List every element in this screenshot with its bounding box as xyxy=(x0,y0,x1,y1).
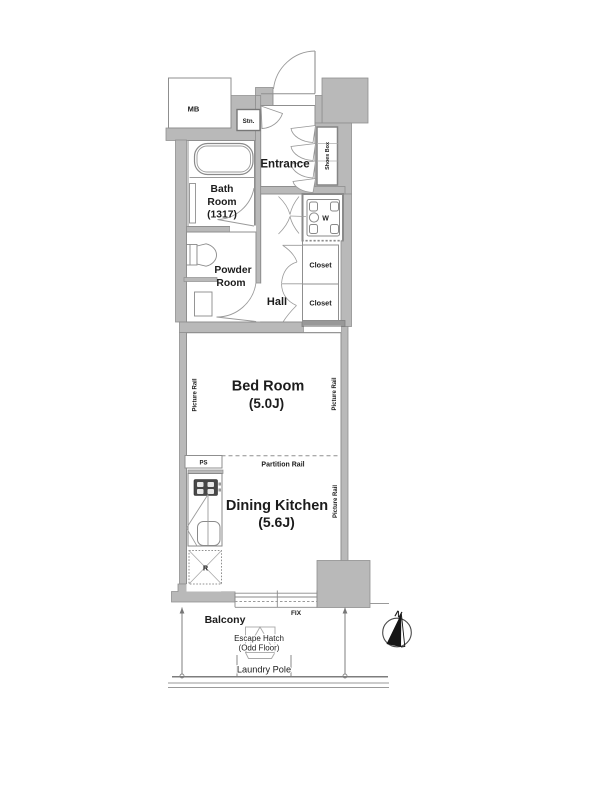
svg-text:Bath: Bath xyxy=(211,184,234,195)
svg-text:Powder: Powder xyxy=(214,265,251,276)
svg-text:Closet: Closet xyxy=(309,299,332,308)
svg-text:Entrance: Entrance xyxy=(260,159,309,171)
svg-text:Picture Rail: Picture Rail xyxy=(193,378,199,411)
svg-text:Escape Hatch: Escape Hatch xyxy=(234,634,284,643)
svg-text:MB: MB xyxy=(188,105,200,114)
svg-text:Bed Room: Bed Room xyxy=(232,379,305,395)
svg-text:Laundry Pole: Laundry Pole xyxy=(237,665,291,675)
svg-text:Picture Rail: Picture Rail xyxy=(333,485,339,518)
svg-text:Stn.: Stn. xyxy=(243,118,255,125)
svg-text:Room: Room xyxy=(216,278,245,289)
svg-text:Partition Rail: Partition Rail xyxy=(261,462,304,469)
svg-text:Room: Room xyxy=(207,197,236,208)
svg-text:Dining Kitchen: Dining Kitchen xyxy=(226,498,328,514)
svg-text:(Odd Floor): (Odd Floor) xyxy=(239,644,280,653)
svg-text:Hall: Hall xyxy=(267,296,287,308)
svg-text:(1317): (1317) xyxy=(207,210,237,221)
svg-text:FIX: FIX xyxy=(291,610,302,617)
svg-text:(5.6J): (5.6J) xyxy=(258,514,295,530)
svg-text:Picture Rail: Picture Rail xyxy=(332,377,338,410)
svg-text:Balcony: Balcony xyxy=(205,614,246,626)
svg-text:W: W xyxy=(322,216,329,223)
svg-text:R: R xyxy=(203,566,208,573)
svg-text:Shoes Box: Shoes Box xyxy=(325,142,331,170)
svg-text:PS: PS xyxy=(199,461,207,467)
svg-text:(5.0J): (5.0J) xyxy=(249,396,284,411)
svg-text:Closet: Closet xyxy=(309,261,332,270)
